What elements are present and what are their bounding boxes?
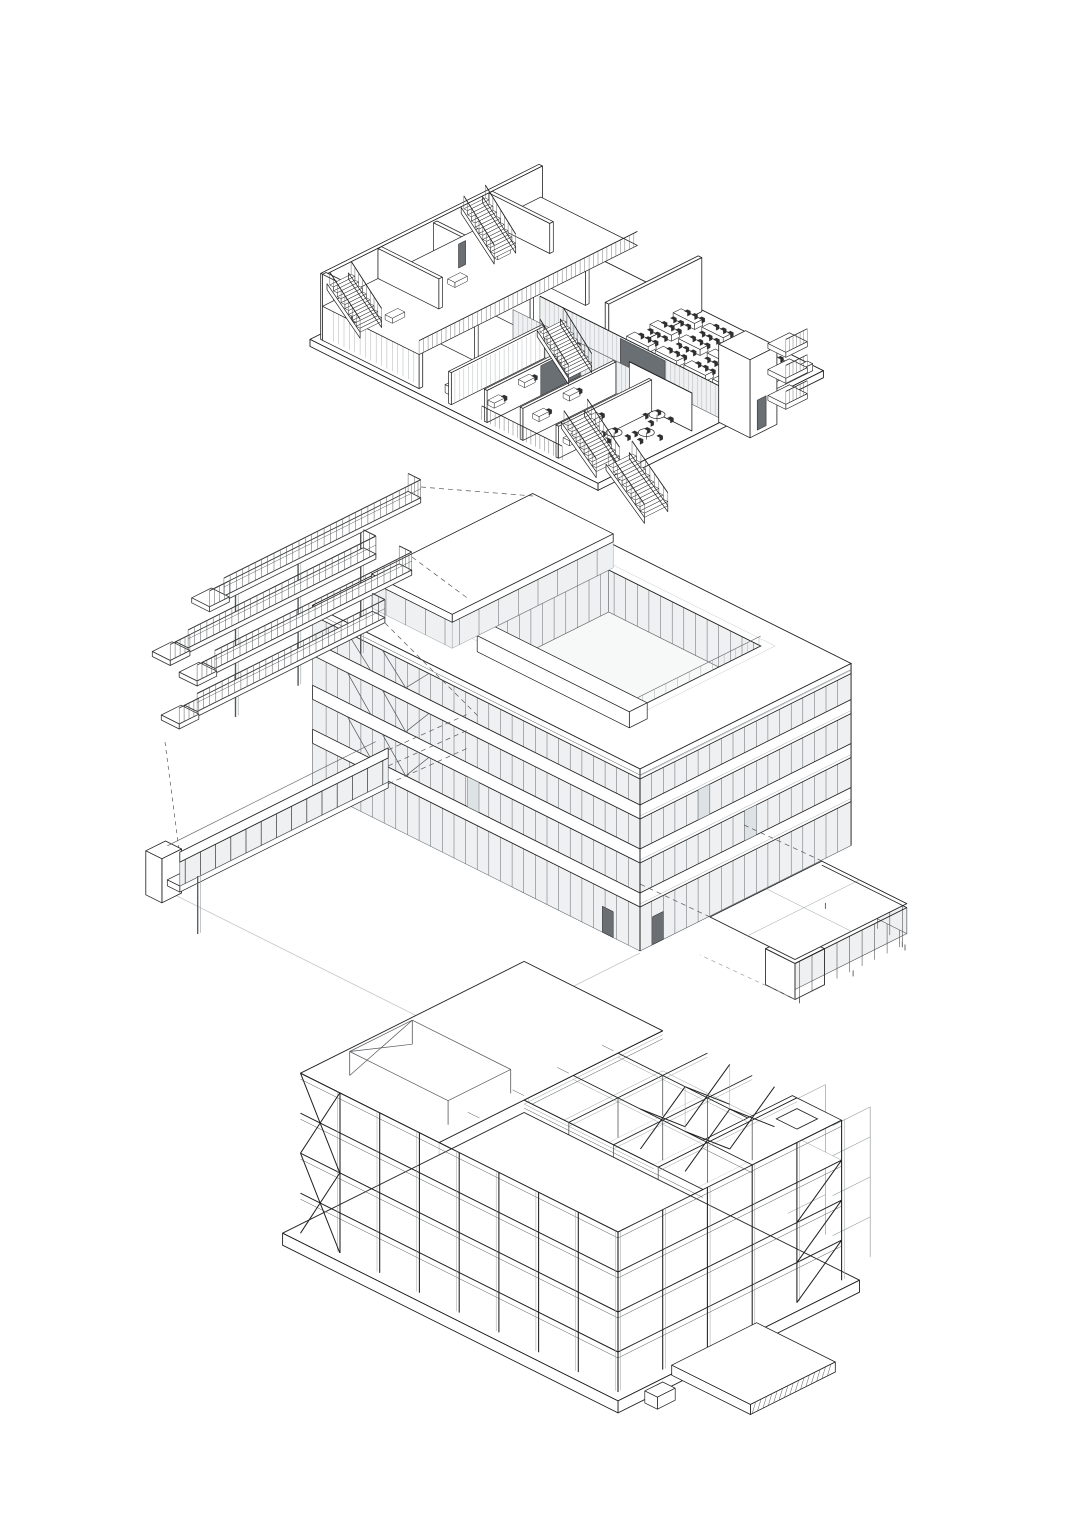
drawing-sheet	[0, 0, 1086, 1536]
interior-axonometric-drawing	[310, 164, 823, 523]
structure-axonometric-drawing	[283, 961, 871, 1414]
figure-canvas	[0, 0, 1086, 1536]
